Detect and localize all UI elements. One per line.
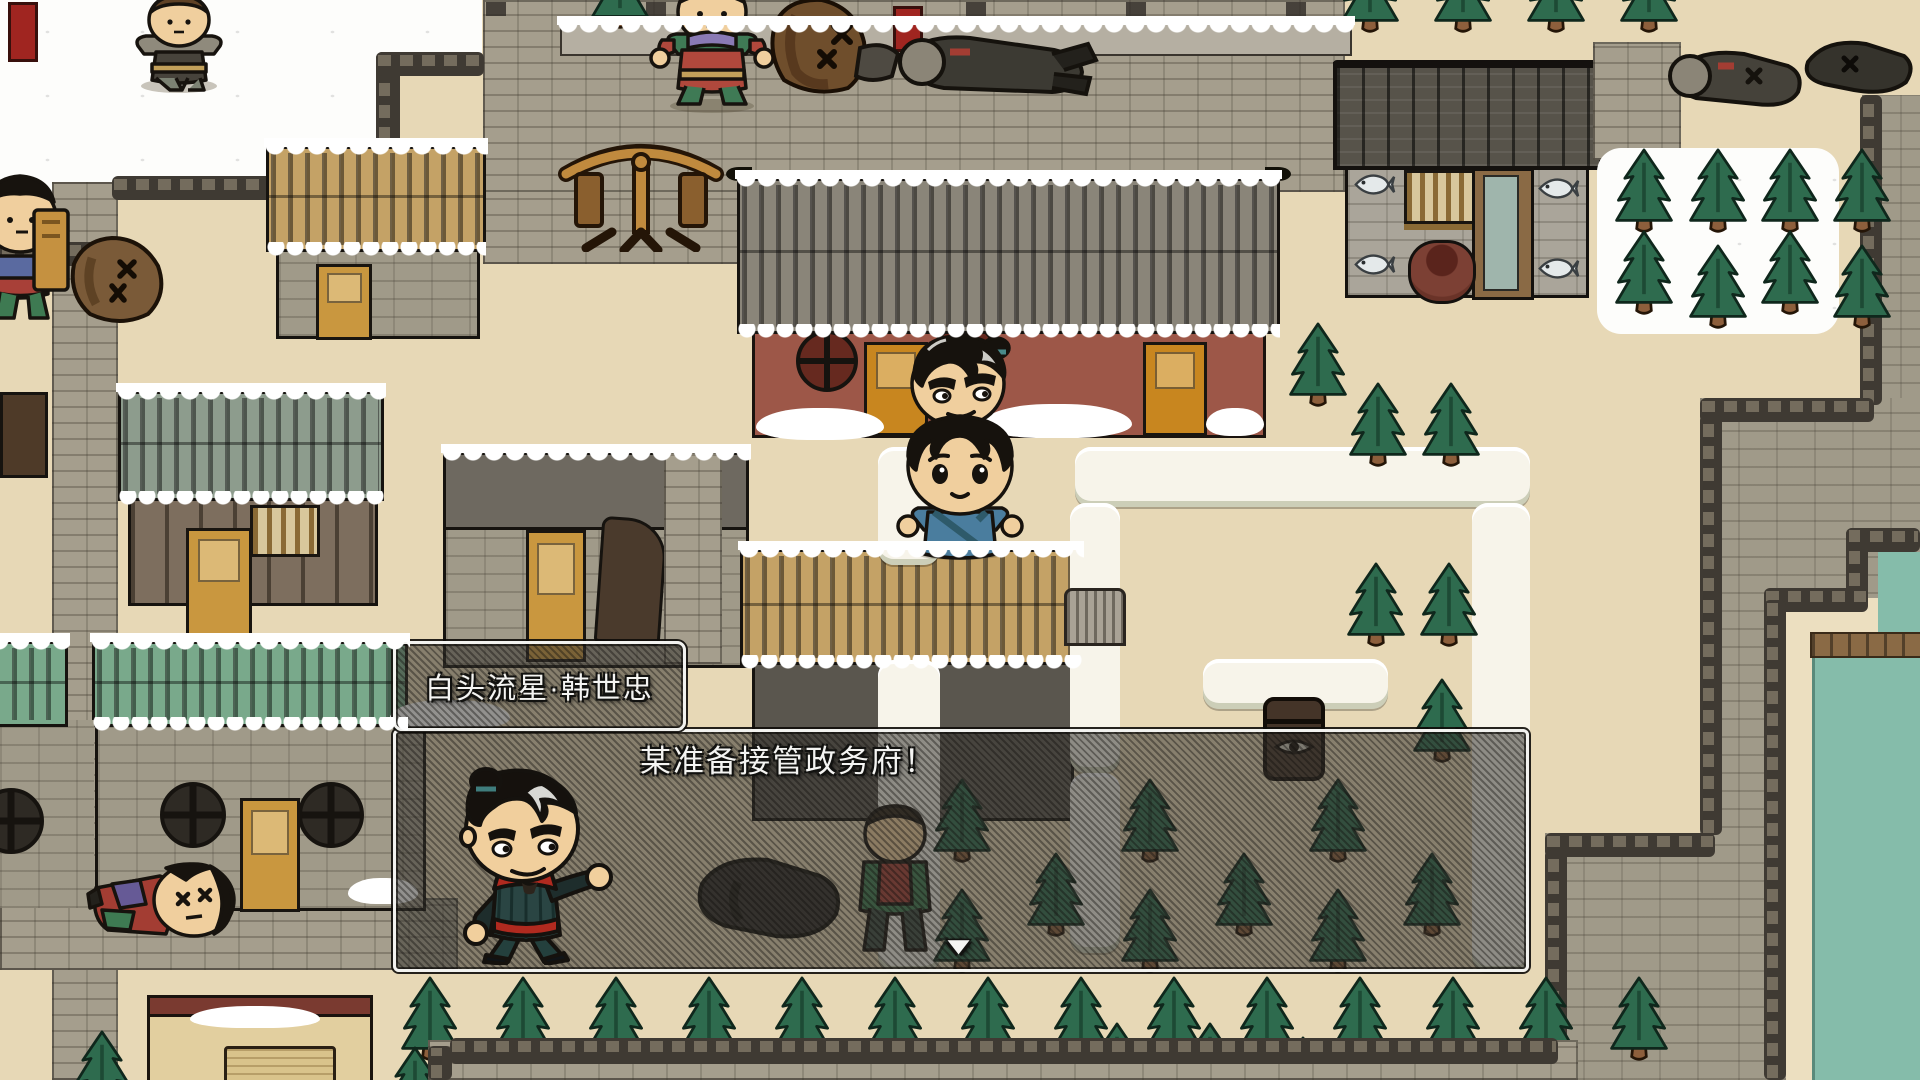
wall-edge <box>1700 398 1874 422</box>
pine-tree <box>1686 148 1750 236</box>
pine-tree <box>1286 322 1350 410</box>
pine-tree <box>1419 382 1483 470</box>
pine-tree <box>1758 230 1822 318</box>
continue-arrow-icon[interactable]: ▼ <box>940 933 980 960</box>
thatch-balcony-green <box>0 641 68 727</box>
thatch-balcony-gold <box>740 549 1082 665</box>
corpse-soldier <box>1792 28 1918 100</box>
npc-boy-blue[interactable] <box>890 408 1030 560</box>
building-window-dark <box>0 392 48 478</box>
building-door[interactable] <box>186 528 252 636</box>
red-building-roof-balustrade <box>737 178 1280 334</box>
pine-tree <box>70 1030 134 1080</box>
straw-mat <box>224 1046 336 1080</box>
speaker-name-box: 白头流星·韩世忠 <box>393 641 686 731</box>
fish-sign-icon <box>1536 176 1580 201</box>
corpse-npc <box>82 838 242 968</box>
building-window <box>250 505 320 557</box>
thatch-balcony-gold <box>266 146 486 252</box>
corpse-soldier <box>1648 36 1808 116</box>
thatch-balcony-green <box>92 641 408 727</box>
fishshop-roof <box>1333 62 1603 170</box>
pine-tree <box>1344 562 1408 650</box>
pine-tree <box>1346 382 1410 470</box>
red-banner <box>8 2 38 62</box>
moat-water <box>1812 652 1920 1080</box>
fish-sign-icon <box>1536 256 1580 281</box>
wall-edge <box>1764 600 1786 1080</box>
dialogue-message: 某准备接管政务府！ <box>640 742 937 782</box>
tent-drape <box>594 516 669 646</box>
pine-tree <box>1830 244 1894 332</box>
building-door[interactable] <box>240 798 300 912</box>
pine-tree <box>1417 562 1481 650</box>
fishshop-door[interactable] <box>1472 168 1534 300</box>
red-building-door[interactable] <box>1143 342 1207 436</box>
building-wall <box>276 246 480 339</box>
round-window <box>298 782 364 848</box>
speaker-name: 白头流星·韩世忠 <box>425 665 654 707</box>
dialogue-portrait <box>446 763 618 965</box>
game-viewport[interactable]: 某准备接管政务府！ ▼ 白头流星·韩世忠 <box>0 0 1920 1080</box>
thatch-balcony-sage <box>118 391 384 501</box>
pine-tree <box>1431 0 1495 36</box>
corpse-sack <box>56 228 176 328</box>
npc-soldier-snowfield[interactable] <box>126 0 232 94</box>
net-gate <box>1064 588 1126 646</box>
pine-tree <box>1612 230 1676 318</box>
weapon-rack <box>552 140 730 252</box>
pine-tree <box>1758 148 1822 236</box>
city-wall-bottom <box>450 1038 1558 1064</box>
wall-edge <box>1700 415 1722 835</box>
wall-edge <box>1545 833 1715 857</box>
pine-tree <box>1612 148 1676 236</box>
pine-tree <box>1524 0 1588 36</box>
fishshop-window <box>1404 170 1476 224</box>
clay-pot <box>1408 240 1476 304</box>
pine-tree <box>1830 148 1894 236</box>
pine-tree <box>1607 976 1671 1064</box>
fish-sign-icon <box>1352 252 1396 277</box>
pine-tree <box>1617 0 1681 36</box>
moat-brick-edge <box>1810 632 1920 658</box>
fish-sign-icon <box>1352 172 1396 197</box>
building-door[interactable] <box>316 264 372 340</box>
city-wall <box>376 52 484 76</box>
brick-pillar <box>664 452 722 664</box>
pine-tree <box>1686 244 1750 332</box>
city-wall-bottom <box>428 1046 452 1080</box>
